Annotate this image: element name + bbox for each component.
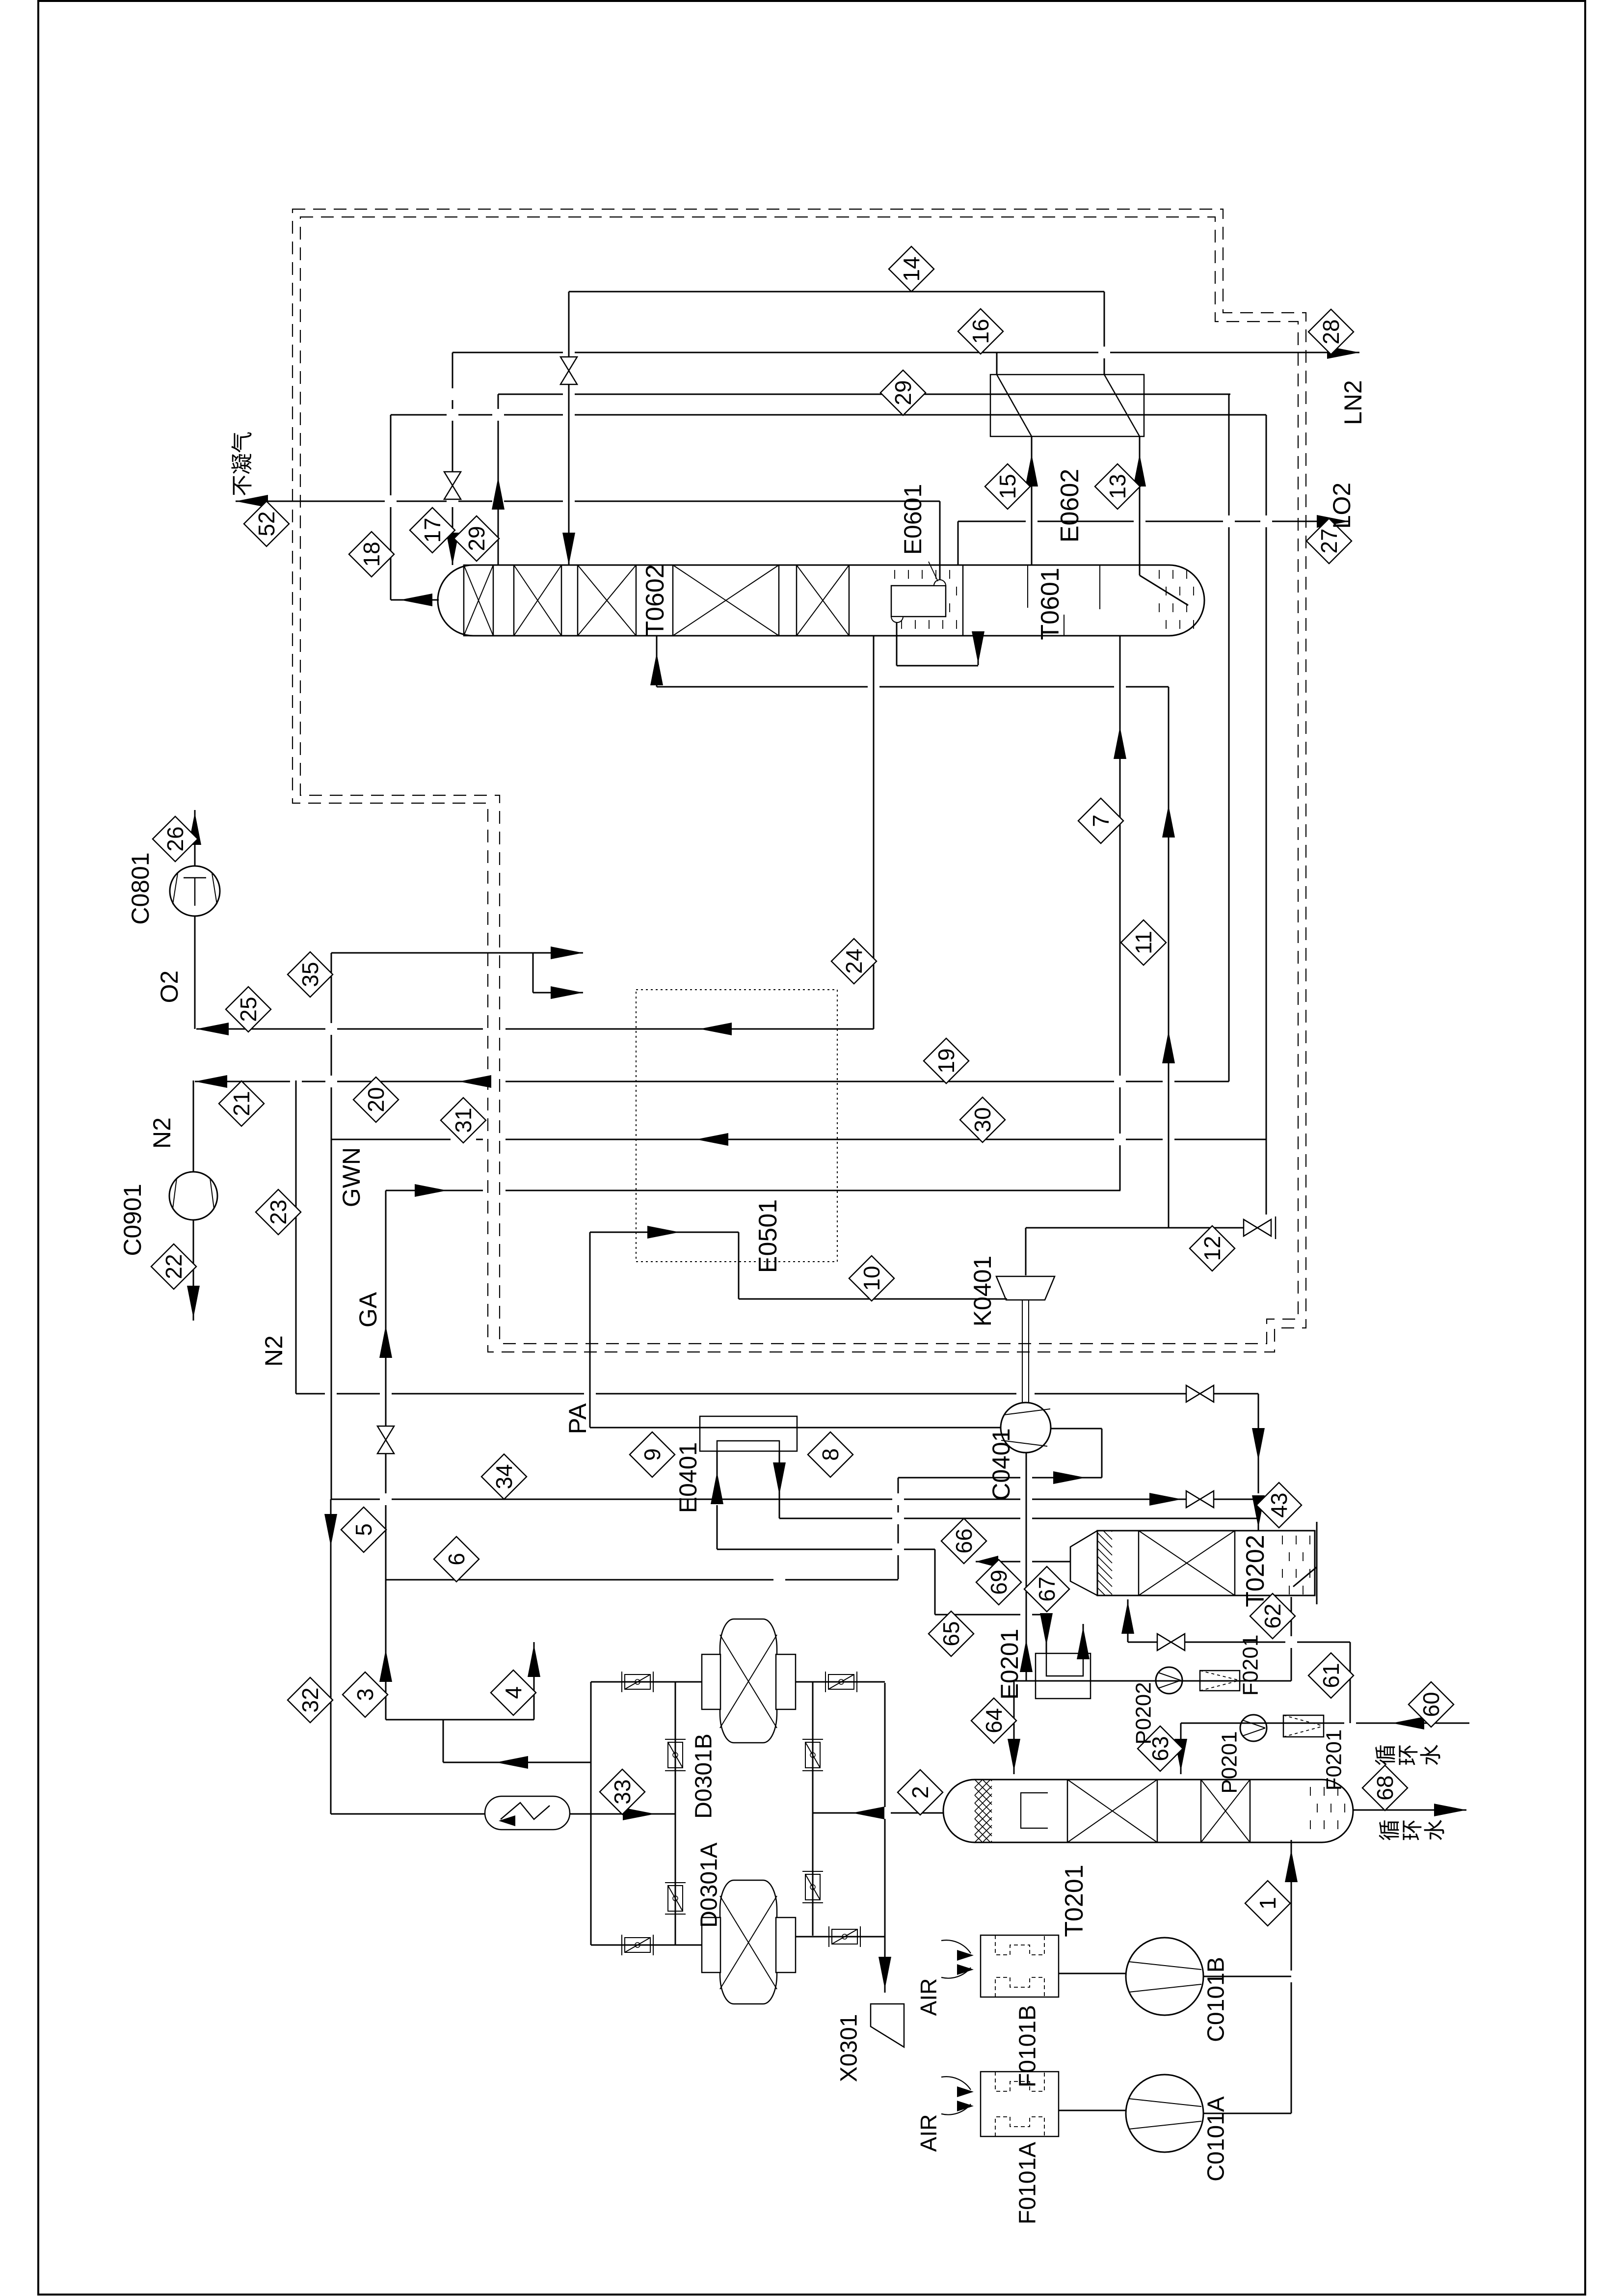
svg-text:AIR: AIR [916, 1978, 941, 2016]
svg-text:循: 循 [1374, 1744, 1398, 1766]
svg-text:15: 15 [995, 474, 1020, 499]
svg-text:16: 16 [968, 319, 993, 344]
svg-text:D0301A: D0301A [696, 1842, 722, 1927]
svg-text:29: 29 [464, 526, 489, 551]
svg-text:LO2: LO2 [1328, 483, 1356, 529]
svg-text:C0901: C0901 [119, 1184, 146, 1256]
svg-text:9: 9 [639, 1448, 665, 1461]
svg-text:O2: O2 [156, 971, 183, 1003]
svg-text:E0401: E0401 [674, 1442, 702, 1513]
svg-text:T0601: T0601 [1036, 567, 1064, 640]
svg-text:25: 25 [236, 997, 261, 1022]
svg-text:P0202: P0202 [1132, 1682, 1156, 1744]
svg-text:GA: GA [354, 1292, 382, 1327]
svg-text:28: 28 [1318, 319, 1344, 344]
svg-text:52: 52 [254, 511, 279, 536]
svg-text:环: 环 [1401, 1819, 1425, 1841]
svg-text:F0201: F0201 [1322, 1729, 1346, 1791]
svg-text:31: 31 [451, 1107, 476, 1133]
svg-text:E0602: E0602 [1056, 469, 1084, 542]
svg-text:12: 12 [1199, 1236, 1225, 1261]
svg-text:18: 18 [359, 541, 384, 567]
svg-text:43: 43 [1266, 1492, 1292, 1517]
svg-text:67: 67 [1034, 1576, 1060, 1601]
svg-text:循: 循 [1378, 1819, 1402, 1841]
svg-text:N2: N2 [260, 1335, 288, 1367]
svg-text:17: 17 [420, 517, 445, 542]
svg-text:60: 60 [1418, 1692, 1444, 1717]
svg-text:13: 13 [1105, 474, 1130, 499]
svg-text:11: 11 [1131, 931, 1156, 954]
svg-text:5: 5 [351, 1523, 376, 1536]
svg-text:7: 7 [1088, 814, 1114, 827]
svg-text:环: 环 [1397, 1744, 1421, 1766]
svg-text:F0101A: F0101A [1015, 2142, 1041, 2224]
svg-text:30: 30 [970, 1107, 995, 1132]
svg-text:32: 32 [297, 1687, 323, 1712]
svg-text:6: 6 [444, 1553, 469, 1566]
svg-text:64: 64 [981, 1708, 1007, 1733]
svg-text:2: 2 [907, 1786, 933, 1799]
svg-text:C0101B: C0101B [1203, 1957, 1229, 2042]
svg-text:19: 19 [933, 1048, 959, 1073]
svg-text:LN2: LN2 [1339, 380, 1367, 425]
svg-text:E0201: E0201 [996, 1629, 1023, 1700]
svg-text:F0201: F0201 [1239, 1635, 1263, 1696]
svg-text:C0101A: C0101A [1203, 2096, 1229, 2181]
svg-text:X0301: X0301 [836, 2014, 862, 2082]
svg-text:P0201: P0201 [1218, 1731, 1242, 1793]
svg-text:22: 22 [161, 1254, 186, 1279]
svg-text:20: 20 [363, 1087, 389, 1112]
svg-text:33: 33 [610, 1779, 635, 1804]
svg-text:34: 34 [491, 1464, 517, 1489]
svg-text:C0401: C0401 [987, 1428, 1015, 1500]
svg-text:PA: PA [564, 1403, 591, 1434]
svg-text:66: 66 [951, 1528, 977, 1553]
svg-text:8: 8 [818, 1448, 843, 1461]
svg-text:61: 61 [1318, 1663, 1344, 1688]
svg-text:不凝气: 不凝气 [231, 432, 255, 496]
svg-text:69: 69 [986, 1569, 1011, 1594]
svg-text:K0401: K0401 [969, 1256, 996, 1327]
svg-text:21: 21 [229, 1091, 254, 1116]
svg-text:23: 23 [266, 1199, 291, 1224]
svg-text:10: 10 [859, 1266, 884, 1291]
svg-text:26: 26 [162, 826, 188, 851]
svg-text:E0601: E0601 [899, 484, 927, 555]
svg-text:35: 35 [297, 962, 323, 987]
svg-text:3: 3 [352, 1688, 378, 1701]
svg-text:AIR: AIR [916, 2114, 941, 2152]
svg-text:65: 65 [938, 1621, 964, 1646]
svg-text:1: 1 [1255, 1897, 1280, 1910]
svg-text:24: 24 [841, 948, 867, 973]
svg-text:D0301B: D0301B [691, 1733, 717, 1818]
svg-text:C0801: C0801 [127, 852, 154, 924]
svg-text:F0101B: F0101B [1015, 2005, 1041, 2087]
svg-text:GWN: GWN [338, 1147, 365, 1207]
svg-text:T0202: T0202 [1241, 1535, 1270, 1607]
svg-text:N2: N2 [148, 1117, 176, 1149]
svg-text:29: 29 [890, 380, 916, 405]
svg-text:27: 27 [1316, 528, 1342, 553]
svg-text:T0201: T0201 [1060, 1864, 1089, 1937]
svg-text:水: 水 [1423, 1819, 1447, 1841]
svg-text:4: 4 [501, 1686, 526, 1699]
svg-text:E0501: E0501 [754, 1199, 782, 1273]
svg-text:T0602: T0602 [641, 564, 669, 636]
svg-text:68: 68 [1372, 1775, 1398, 1800]
svg-text:14: 14 [899, 256, 924, 281]
svg-text:水: 水 [1419, 1744, 1443, 1766]
